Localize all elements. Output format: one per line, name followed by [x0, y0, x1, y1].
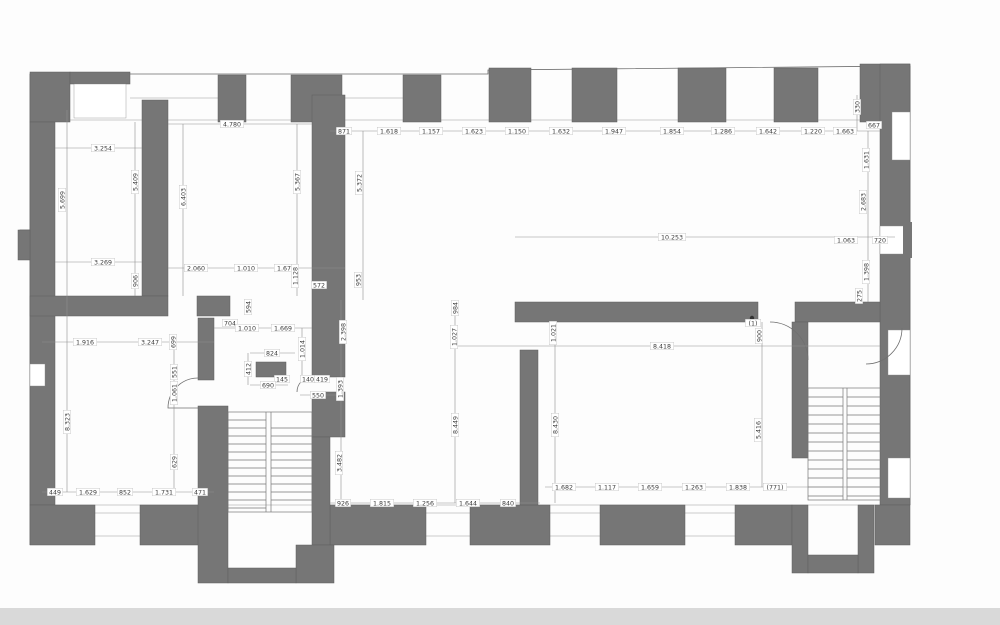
dimension-label: 551: [170, 364, 178, 379]
dimension-label: 1.027: [450, 325, 458, 349]
svg-text:5.367: 5.367: [294, 173, 301, 191]
svg-text:6.403: 6.403: [180, 188, 187, 206]
dimension-label: 5.416: [754, 418, 762, 442]
svg-text:594: 594: [245, 301, 252, 313]
dimension-label: 2.683: [859, 190, 867, 214]
dimension-label: 330: [853, 99, 861, 114]
svg-text:412: 412: [245, 363, 252, 375]
dimension-label: 2.398: [339, 320, 347, 344]
dimension-label: 1.220: [801, 127, 825, 135]
dimension-label: 1.010: [234, 264, 258, 272]
svg-text:690: 690: [262, 382, 274, 389]
svg-text:704: 704: [224, 320, 236, 327]
svg-text:8.323: 8.323: [64, 413, 71, 431]
svg-text:1.618: 1.618: [380, 128, 398, 135]
dimension-label: 1.623: [462, 127, 486, 135]
svg-text:3.482: 3.482: [336, 454, 343, 472]
svg-text:(1): (1): [749, 320, 758, 327]
dimension-lines: [42, 95, 895, 503]
dimension-label: 1.010: [235, 324, 259, 332]
svg-text:1.659: 1.659: [641, 484, 659, 491]
dimension-label: 926: [335, 499, 350, 507]
svg-text:1.669: 1.669: [274, 325, 292, 332]
dimension-label: 1.631: [862, 148, 870, 172]
svg-text:1.398: 1.398: [863, 263, 870, 281]
dimension-label: 6.403: [179, 185, 187, 209]
svg-text:926: 926: [337, 500, 349, 507]
floor-plan-page: 3.2544.7808711.6181.1571.6231.1501.6321.…: [0, 0, 1000, 625]
dimension-label: 871: [336, 127, 351, 135]
svg-text:699: 699: [170, 336, 177, 348]
dimension-label: 984: [451, 300, 459, 315]
svg-text:1.854: 1.854: [663, 128, 681, 135]
svg-text:1.010: 1.010: [237, 265, 255, 272]
svg-text:1.286: 1.286: [714, 128, 732, 135]
svg-text:1.063: 1.063: [837, 237, 855, 244]
svg-text:1.731: 1.731: [155, 489, 173, 496]
dimension-label: 10.253: [658, 233, 686, 241]
stair-treads-right: [271, 428, 312, 500]
dimension-label: 900: [755, 328, 763, 343]
svg-text:1.393: 1.393: [337, 380, 344, 398]
svg-text:2.683: 2.683: [860, 193, 867, 211]
svg-text:145: 145: [276, 376, 288, 383]
dimension-label: 412: [244, 361, 252, 376]
svg-text:1.150: 1.150: [508, 128, 526, 135]
dimension-label: 1.157: [419, 127, 443, 135]
dimension-label: 5.409: [131, 170, 139, 194]
svg-text:720: 720: [874, 237, 886, 244]
floor-plan-drawing: 3.2544.7808711.6181.1571.6231.1501.6321.…: [0, 0, 1000, 625]
dimension-labels: 3.2544.7808711.6181.1571.6231.1501.6321.…: [47, 99, 887, 507]
dimension-label: 699: [169, 334, 177, 349]
dimension-label: 3.247: [138, 338, 162, 346]
stair-treads-left: [808, 397, 843, 496]
dimension-label: 1.854: [660, 127, 684, 135]
svg-text:1.663: 1.663: [836, 128, 854, 135]
svg-text:1.128: 1.128: [292, 267, 299, 285]
svg-text:667: 667: [868, 122, 880, 129]
dimension-label: 1.644: [456, 499, 480, 507]
svg-text:1.157: 1.157: [422, 128, 440, 135]
dimension-label: 1.398: [862, 260, 870, 284]
dimension-label: 629: [170, 454, 178, 469]
dimension-label: 1.618: [377, 127, 401, 135]
dimension-label: 1.150: [505, 127, 529, 135]
dimension-label: 8.323: [63, 410, 71, 434]
svg-text:3.269: 3.269: [94, 259, 112, 266]
svg-text:1.815: 1.815: [373, 500, 391, 507]
svg-text:572: 572: [313, 282, 325, 289]
svg-text:824: 824: [266, 350, 278, 357]
dimension-label: 906: [131, 273, 139, 288]
svg-text:1.623: 1.623: [465, 128, 483, 135]
dimension-label: 840: [500, 499, 515, 507]
dimension-label: 1.815: [370, 499, 394, 507]
svg-text:140: 140: [302, 376, 314, 383]
dimension-label: 953: [354, 272, 362, 287]
svg-text:419: 419: [316, 376, 328, 383]
svg-text:330: 330: [854, 101, 861, 113]
svg-text:8.418: 8.418: [653, 343, 671, 350]
dimension-label: 1.014: [298, 337, 306, 361]
dimension-label: 8.449: [451, 413, 459, 437]
svg-text:(771): (771): [767, 484, 784, 491]
svg-text:840: 840: [502, 500, 514, 507]
svg-text:8.430: 8.430: [552, 416, 559, 434]
dimension-label: 4.780: [220, 120, 244, 128]
dimension-label: 3.482: [335, 451, 343, 475]
svg-text:1.117: 1.117: [598, 484, 616, 491]
dimension-label: 3.269: [91, 258, 115, 266]
svg-text:1.010: 1.010: [238, 325, 256, 332]
dimension-label: 5.367: [293, 170, 301, 194]
svg-text:1.631: 1.631: [863, 151, 870, 169]
dimension-label: 5.699: [58, 188, 66, 212]
dimension-label: 667: [866, 121, 881, 129]
dimension-label: 8.418: [650, 342, 674, 350]
dimension-label: 1.663: [833, 127, 857, 135]
svg-text:953: 953: [355, 274, 362, 286]
dimension-label: 824: [264, 349, 279, 357]
dimension-label: 5.372: [355, 171, 363, 195]
svg-text:1.644: 1.644: [459, 500, 477, 507]
svg-text:906: 906: [132, 275, 139, 287]
dimension-label: 145: [274, 375, 289, 383]
svg-text:1.838: 1.838: [729, 484, 747, 491]
svg-text:1.632: 1.632: [552, 128, 570, 135]
svg-text:1.256: 1.256: [416, 500, 434, 507]
svg-text:900: 900: [756, 330, 763, 342]
dimension-label: 1.063: [834, 236, 858, 244]
dimension-label: 594: [244, 299, 252, 314]
dimension-label: 690: [260, 381, 275, 389]
svg-text:8.449: 8.449: [452, 416, 459, 434]
svg-text:3.254: 3.254: [94, 145, 112, 152]
svg-text:1.027: 1.027: [451, 328, 458, 346]
dimension-label: 572: [311, 281, 326, 289]
dimension-label: (1): [745, 319, 760, 327]
svg-text:5.372: 5.372: [356, 174, 363, 192]
dimension-label: 1.021: [549, 321, 557, 345]
dimension-label: 1.682: [552, 483, 576, 491]
svg-text:2.398: 2.398: [340, 323, 347, 341]
dimension-label: 1.659: [638, 483, 662, 491]
svg-text:1.642: 1.642: [759, 128, 777, 135]
dimension-label: 550: [310, 391, 325, 399]
svg-text:871: 871: [338, 128, 350, 135]
svg-text:852: 852: [119, 489, 131, 496]
svg-text:10.253: 10.253: [661, 234, 683, 241]
dimension-label: 275: [855, 288, 863, 303]
dimension-label: 1.669: [271, 324, 295, 332]
svg-text:1.263: 1.263: [685, 484, 703, 491]
dimension-label: 1.286: [711, 127, 735, 135]
staircase-right: [808, 388, 883, 500]
dimension-label: 1.128: [291, 264, 299, 288]
dimension-label: 852: [117, 488, 132, 496]
dimension-label: 720: [872, 236, 887, 244]
svg-text:629: 629: [171, 456, 178, 468]
dimension-label: 1.393: [336, 377, 344, 401]
dimension-label: 1.263: [682, 483, 706, 491]
dimension-label: 1.117: [595, 483, 619, 491]
svg-text:2.060: 2.060: [187, 265, 205, 272]
svg-text:1.014: 1.014: [299, 340, 306, 358]
svg-text:3.247: 3.247: [141, 339, 159, 346]
svg-text:4.780: 4.780: [223, 121, 241, 128]
dimension-label: 471: [192, 488, 207, 496]
dimension-label: 1.916: [73, 338, 97, 346]
dimension-label: 2.060: [184, 264, 208, 272]
dimension-label: 1.642: [756, 127, 780, 135]
dimension-label: 1.256: [413, 499, 437, 507]
svg-text:471: 471: [194, 489, 206, 496]
svg-text:1.061: 1.061: [171, 384, 178, 402]
svg-text:275: 275: [856, 290, 863, 302]
dimension-label: 1.632: [549, 127, 573, 135]
svg-text:5.699: 5.699: [59, 191, 66, 209]
dimension-label: 3.254: [91, 144, 115, 152]
svg-text:1.629: 1.629: [79, 489, 97, 496]
dimension-label: 1.838: [726, 483, 750, 491]
dimension-label: 449: [47, 488, 62, 496]
stair-treads-right: [847, 397, 883, 496]
svg-text:449: 449: [49, 489, 61, 496]
svg-text:1.021: 1.021: [550, 324, 557, 342]
dimension-label: 1.629: [76, 488, 100, 496]
dimension-label: 1.731: [152, 488, 176, 496]
svg-text:1.682: 1.682: [555, 484, 573, 491]
svg-text:984: 984: [452, 302, 459, 314]
dimension-label: 8.430: [551, 413, 559, 437]
svg-text:1.947: 1.947: [605, 128, 623, 135]
staircase-bottom: [228, 412, 312, 512]
svg-text:551: 551: [171, 366, 178, 378]
dimension-label: (771): [763, 483, 787, 491]
svg-text:1.916: 1.916: [76, 339, 94, 346]
stair-treads-left: [228, 420, 266, 508]
svg-text:5.416: 5.416: [755, 421, 762, 439]
dimension-label: 140: [300, 375, 315, 383]
svg-text:550: 550: [312, 392, 324, 399]
dimension-label: 419: [314, 375, 329, 383]
dimension-label: 1.947: [602, 127, 626, 135]
svg-text:5.409: 5.409: [132, 173, 139, 191]
dimension-label: 1.061: [170, 381, 178, 405]
svg-text:1.220: 1.220: [804, 128, 822, 135]
